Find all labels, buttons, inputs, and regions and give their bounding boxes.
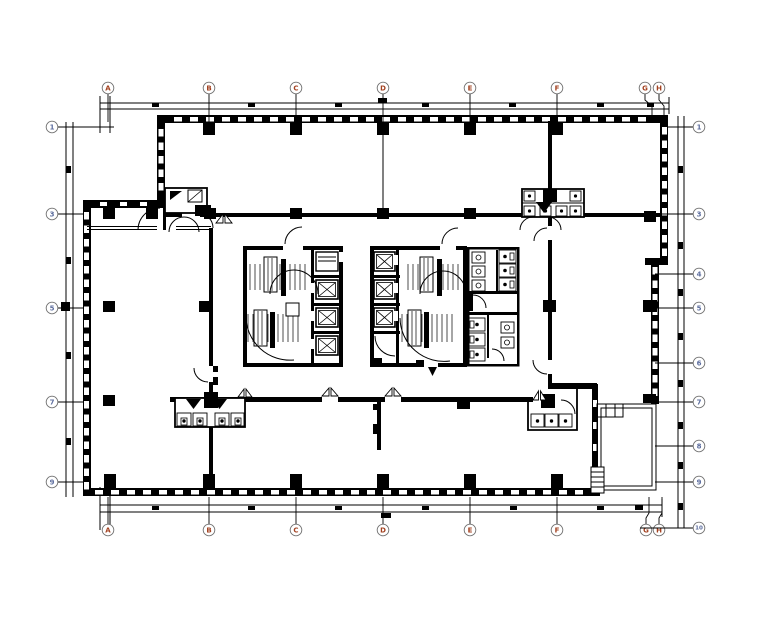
toilet-icon xyxy=(499,278,516,291)
grid-bubble-label: A xyxy=(105,527,111,535)
grid-bubble-label: 10 xyxy=(695,526,703,532)
grid-bubble-label: 8 xyxy=(697,443,702,451)
grid-bubble-label: C xyxy=(293,85,298,93)
structural-columns xyxy=(61,123,657,488)
grid-bubble-label: 5 xyxy=(697,305,702,313)
door-swing-icon xyxy=(533,360,547,374)
grid-bubble-label: E xyxy=(468,85,473,93)
grid-bubble-label: 7 xyxy=(697,399,702,407)
grid-bubble-label: D xyxy=(380,85,386,93)
floor-plan-canvas: ABCDEFGHABCDEFGH135791345678910 xyxy=(0,0,774,619)
grid-bubble-label: 3 xyxy=(50,211,55,219)
double-door-icon xyxy=(322,388,329,396)
sink-icon xyxy=(501,322,514,333)
grid-bubble-label: H xyxy=(656,85,662,93)
door-swing-icon xyxy=(561,400,575,414)
sink-icon xyxy=(472,252,485,263)
door-swing-icon xyxy=(285,227,302,244)
grid-bubble-label: 4 xyxy=(697,271,702,279)
grid-bubble-label: 6 xyxy=(697,360,702,368)
double-door-icon xyxy=(238,389,244,397)
grid-bubble-label: 7 xyxy=(50,399,55,407)
floor-plan-drawing: ABCDEFGHABCDEFGH135791345678910 xyxy=(0,0,774,619)
double-door-icon xyxy=(385,388,392,396)
ladder-icon xyxy=(591,467,604,493)
grid-bubble-label: 1 xyxy=(50,124,55,132)
sink-icon xyxy=(472,280,485,291)
grid-bubble-label: 9 xyxy=(50,479,55,487)
double-door-icon xyxy=(246,389,252,397)
grid-bubble-label: 1 xyxy=(697,124,702,132)
toilet-icon xyxy=(499,264,516,277)
sink-icon xyxy=(472,266,485,277)
toilet-icon xyxy=(499,250,516,263)
door-swing-icon xyxy=(442,228,458,244)
grid-bubble-label: F xyxy=(555,527,560,535)
grid-bubble-label: 5 xyxy=(50,305,55,313)
door-swing-icon xyxy=(194,368,208,382)
double-door-icon xyxy=(331,388,338,396)
grid-bubble-label: A xyxy=(105,85,111,93)
sink-icon xyxy=(501,337,514,348)
stair-elevator-core-east xyxy=(372,248,466,376)
grid-bubble-label: G xyxy=(642,85,648,93)
grid-bubble-label: D xyxy=(380,527,386,535)
grid-bubble-label: B xyxy=(206,527,211,535)
double-door-icon xyxy=(533,391,539,400)
grid-bubble-label: B xyxy=(206,85,211,93)
grid-bubble-label: C xyxy=(293,527,298,535)
terrace xyxy=(591,404,656,493)
door-swing-icon xyxy=(520,217,533,230)
grid-bubble-label: F xyxy=(555,85,560,93)
stair-elevator-core-west xyxy=(246,248,345,365)
grid-bubble-label: 9 xyxy=(697,479,702,487)
door-swing-icon xyxy=(534,228,547,241)
grid-bubble-label: E xyxy=(468,527,473,535)
double-door-icon xyxy=(394,388,401,396)
grid-bubble-label: 3 xyxy=(697,211,702,219)
